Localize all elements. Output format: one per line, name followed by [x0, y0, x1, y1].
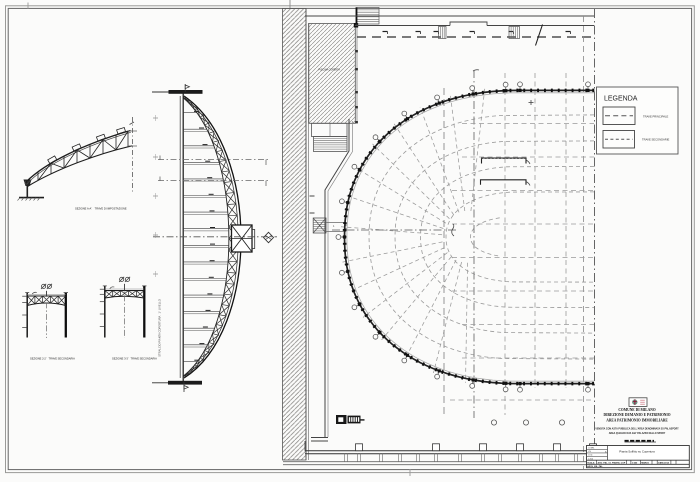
svg-text:1:200: 1:200: [588, 458, 594, 460]
svg-text:SCALA: SCALA: [587, 461, 595, 464]
svg-text:COMM.: COMM.: [588, 448, 595, 450]
svg-text:TRAVE PRINCIPALE: TRAVE PRINCIPALE: [643, 114, 668, 118]
svg-text:ARCH_MIL_PAL: ARCH_MIL_PAL: [587, 465, 603, 468]
svg-text:MARZO: MARZO: [641, 461, 649, 464]
svg-text:VENDITA CON ASTA PUBBLICA DELL: VENDITA CON ASTA PUBBLICA DELL'AREA DENO…: [595, 428, 679, 431]
svg-text:SEZIONE 3-3' TRAVE SECONDARI: SEZIONE 3-3' TRAVE SECONDARIA: [112, 357, 157, 361]
svg-text:STRALCIO PIANTA COPERTURA 1°: STRALCIO PIANTA COPERTURA 1° LIVELLO: [158, 299, 162, 357]
svg-text:Pianta Soffitto su Copertura: Pianta Soffitto su Copertura: [619, 450, 655, 454]
svg-text:LIV.: LIV.: [588, 451, 592, 453]
svg-text:AGG_PAL_01_PIANTA_COP: AGG_PAL_01_PIANTA_COP: [598, 461, 626, 464]
svg-text:SEZIONE 2-2' TRAVE SECONDARI: SEZIONE 2-2' TRAVE SECONDARIA: [30, 357, 75, 361]
svg-text:COD.: COD.: [588, 455, 593, 457]
svg-text:LEGENDA: LEGENDA: [604, 96, 638, 103]
svg-text:COMUNE DI MILANO: COMUNE DI MILANO: [618, 408, 656, 412]
svg-text:AREA PATRIMONIO IMMOBILIARE: AREA PATRIMONIO IMMOBILIARE: [606, 418, 668, 422]
svg-text:AREA QUALIFICATA GIA' PALAZZO: AREA QUALIFICATA GIA' PALAZZO DELLO SPOR…: [609, 432, 666, 435]
svg-text:TRAVE SECONDARIE: TRAVE SECONDARIE: [642, 138, 669, 142]
svg-text:DIREZIONE DEMANIO E PATRIMONIO: DIREZIONE DEMANIO E PATRIMONIO: [603, 413, 670, 417]
svg-text:DATA 2014: DATA 2014: [658, 461, 669, 464]
svg-text:PISCINA COPERTA: PISCINA COPERTA: [319, 69, 341, 72]
svg-text:SEZIONE A-A' TRAVE DI IMPOS: SEZIONE A-A' TRAVE DI IMPOSTAZIONE: [75, 206, 127, 210]
svg-text:1:500: 1:500: [632, 462, 638, 464]
